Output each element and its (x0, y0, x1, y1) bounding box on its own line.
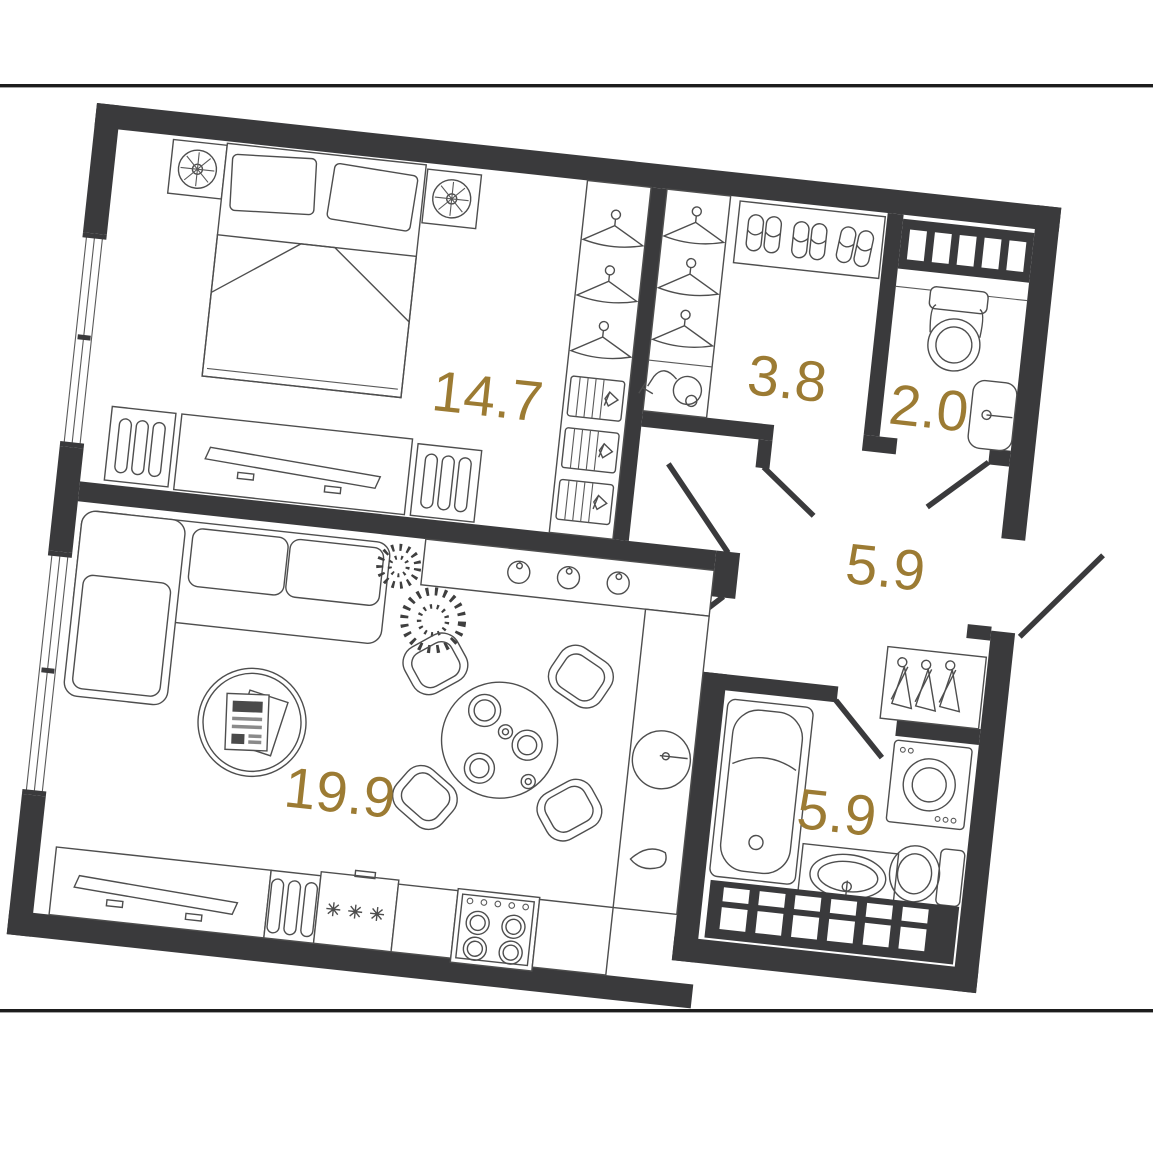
dining-set (378, 620, 628, 856)
apartment-plan: 14.7 3.8 (7, 103, 1140, 1047)
area-label-bedroom: 14.7 (429, 359, 546, 435)
toilet (887, 282, 1027, 378)
door-swing-wardrobe (759, 467, 818, 516)
room-living-kitchen: 19.9 (39, 502, 714, 986)
wall-stub (756, 439, 773, 468)
door-swing-living-a (660, 464, 737, 553)
section-line-bottom (0, 1009, 1153, 1012)
toilet (887, 843, 966, 907)
slippers-shelf (733, 201, 885, 278)
wall-segment (862, 435, 898, 455)
section-line-top (0, 84, 1153, 87)
room-bedroom: 14.7 (104, 132, 651, 539)
wall-segment (83, 103, 121, 235)
room-wardrobe: 3.8 (637, 188, 886, 434)
dining-chair (541, 638, 620, 715)
nightstand-right (422, 169, 482, 229)
washing-machine-icon (886, 740, 972, 830)
potted-plant-icon (401, 588, 465, 652)
area-label-wardrobe: 3.8 (744, 343, 830, 415)
bed (202, 143, 426, 397)
dining-chair (397, 627, 475, 701)
door-swing-wc (927, 456, 988, 513)
nightstand-left (168, 139, 228, 199)
dining-chair (531, 773, 609, 847)
area-label-wc: 2.0 (886, 373, 972, 445)
wall-entry-stub (966, 624, 991, 641)
floor-plan-page: 14.7 3.8 (0, 0, 1153, 1153)
wash-basin (967, 379, 1018, 451)
coat-rack (880, 647, 986, 729)
radiator-icon (104, 406, 176, 486)
kitchen-counter (532, 899, 613, 975)
stove (450, 889, 540, 971)
room-wc: 2.0 (879, 219, 1034, 452)
radiator-icon (264, 870, 321, 943)
window-bedroom (60, 232, 107, 448)
area-label-living: 19.9 (281, 755, 398, 831)
area-label-hallway: 5.9 (843, 532, 929, 604)
door-swing-entry (1020, 547, 1103, 644)
wall-stub (711, 551, 740, 599)
floor-plan-drawing: 14.7 3.8 (0, 0, 1153, 1153)
fridge-icon (314, 867, 400, 952)
radiator-icon (410, 444, 481, 522)
towel-radiator (898, 219, 1035, 283)
door-swing-bathroom (830, 700, 887, 757)
dining-table (436, 676, 564, 804)
wall-wardrobe (641, 411, 774, 441)
area-label-bathroom: 5.9 (794, 777, 880, 849)
kitchen-counter (391, 884, 458, 958)
